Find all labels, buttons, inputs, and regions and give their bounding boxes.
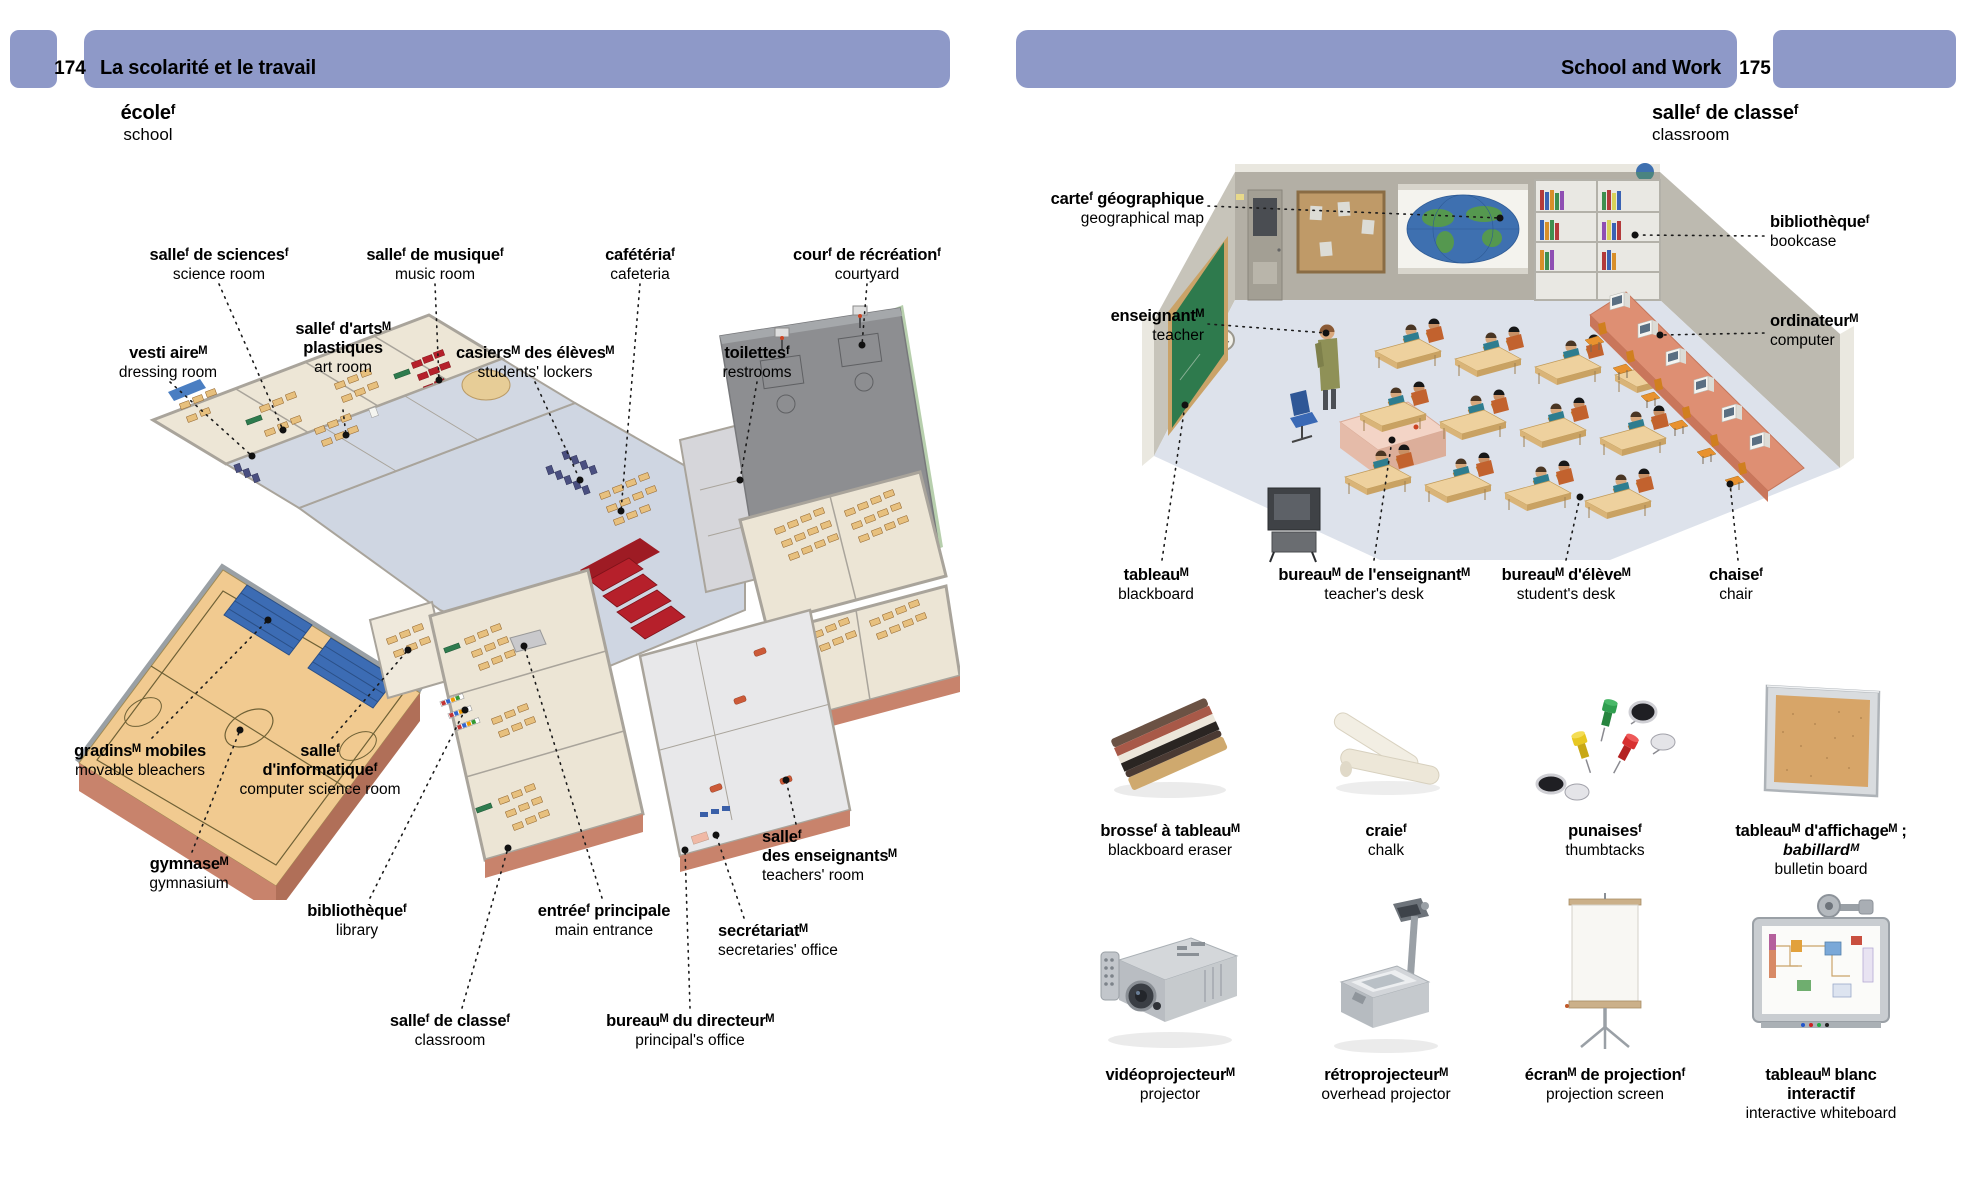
term-en: principal's office — [606, 1031, 774, 1050]
term-en: classroom — [390, 1031, 510, 1050]
callout-label-cafeteria: cafétériaᶠcafeteria — [605, 246, 675, 284]
tv-stand — [1268, 488, 1320, 562]
header-title-right: School and Work — [1561, 57, 1721, 80]
term-en: overhead projector — [1278, 1085, 1494, 1104]
term-en: bulletin board — [1713, 860, 1929, 879]
callout-label-computer: ordinateurᴹcomputer — [1770, 312, 1858, 350]
callout-label-blackboard: tableauᴹblackboard — [1118, 566, 1194, 604]
term-fr: rétroprojecteurᴹ — [1278, 1066, 1494, 1085]
term-fr: entréeᶠ principale — [538, 902, 670, 921]
term-en: student's desk — [1502, 585, 1631, 604]
term-en: teacher's desk — [1278, 585, 1469, 604]
term-fr: tableauᴹ blanc interactif — [1713, 1066, 1929, 1104]
term-en: geographical map — [984, 209, 1204, 228]
callout-label-gymnasium: gymnaseᴹgymnasium — [149, 855, 228, 893]
item-projector: vidéoprojecteurᴹprojector — [1062, 880, 1278, 1104]
section-title-classroom: salleᶠ de classeᶠ classroom — [1652, 102, 1872, 145]
item-bulletin-board: tableauᴹ d'affichageᴹ ;babillardᴹbulleti… — [1713, 658, 1929, 879]
header-band-right: School and Work — [1016, 30, 1737, 88]
term-en: restrooms — [723, 363, 792, 382]
term-fr: gradinsᴹ mobiles — [74, 742, 206, 761]
callout-label-teachers-desk: bureauᴹ de l'enseignantᴹteacher's desk — [1278, 566, 1469, 604]
header-band-right-tab — [1773, 30, 1956, 88]
callout-label-computer-room: salleᶠ d'informatiqueᶠcomputer science r… — [239, 742, 400, 799]
term-fr: toilettesᶠ — [723, 344, 792, 363]
term-fr: carteᶠ géographique — [984, 190, 1204, 209]
push-pin-yellow — [1570, 730, 1597, 775]
callout-label-art-room: salleᶠ d'artsᴹ plastiquesart room — [295, 320, 390, 377]
term-fr: gymnaseᴹ — [149, 855, 228, 874]
callout-label-chair: chaiseᶠchair — [1709, 566, 1763, 604]
term-en: main entrance — [538, 921, 670, 940]
item-projection-screen: écranᴹ de projectionᶠprojection screen — [1497, 880, 1713, 1104]
page-number-right: 175 — [1735, 30, 1775, 88]
term-en: art room — [295, 358, 390, 377]
bulletin-board-icon — [1741, 666, 1901, 816]
term-en: music room — [366, 265, 503, 284]
chalk-icon — [1306, 666, 1466, 816]
term-fr: vesti aireᴹ — [119, 344, 217, 363]
callout-label-teacher: enseignantᴹteacher — [984, 307, 1204, 345]
callout-label-bookcase: bibliothèqueᶠbookcase — [1770, 213, 1869, 251]
header-band-left: La scolarité et le travail — [84, 30, 950, 88]
callout-label-classroom: salleᶠ de classeᶠclassroom — [390, 1012, 510, 1050]
term-fr-alt: babillardᴹ — [1713, 841, 1929, 860]
callout-label-courtyard: courᶠ de récréationᶠcourtyard — [793, 246, 941, 284]
callout-label-principals-office: bureauᴹ du directeurᴹprincipal's office — [606, 1012, 774, 1050]
term-fr: salleᶠ d'informatiqueᶠ — [239, 742, 400, 780]
term-en: blackboard — [1118, 585, 1194, 604]
callout-label-main-entrance: entréeᶠ principalemain entrance — [538, 902, 670, 940]
callout-label-lockers: casiersᴹ des élèvesᴹstudents' lockers — [456, 344, 614, 382]
classroom-illustration — [1140, 150, 1860, 570]
item-interactive-whiteboard: tableauᴹ blanc interactifinteractive whi… — [1713, 880, 1929, 1123]
term-fr: salleᶠ d'artsᴹ plastiques — [295, 320, 390, 358]
term-fr: cafétériaᶠ — [605, 246, 675, 265]
term-fr: écranᴹ de projectionᶠ — [1497, 1066, 1713, 1085]
term-en: secretaries' office — [718, 941, 838, 960]
term-fr: salleᶠ de classeᶠ — [390, 1012, 510, 1031]
callout-label-restrooms: toilettesᶠrestrooms — [723, 344, 792, 382]
term-en: students' lockers — [456, 363, 614, 382]
board-projector-arm — [1818, 895, 1873, 917]
term-en: library — [307, 921, 406, 940]
term-en: computer — [1770, 331, 1858, 350]
term-fr: courᶠ de récréationᶠ — [793, 246, 941, 265]
callout-label-students-desk: bureauᴹ d'élèveᴹstudent's desk — [1502, 566, 1631, 604]
term-en: science room — [149, 265, 288, 284]
item-blackboard-eraser: brosseᶠ à tableauᴹblackboard eraser — [1062, 658, 1278, 860]
gymnasium — [79, 570, 420, 900]
term-en: chalk — [1278, 841, 1494, 860]
term-en: bookcase — [1770, 232, 1869, 251]
term-fr: bibliothèqueᶠ — [307, 902, 406, 921]
section-title-school: écoleᶠ school — [88, 102, 208, 145]
term-en: gymnasium — [149, 874, 228, 893]
callout-label-map: carteᶠ géographiquegeographical map — [984, 190, 1204, 228]
callout-label-secretaries-office: secrétariatᴹsecretaries' office — [718, 922, 838, 960]
term-en: computer science room — [239, 780, 400, 799]
eraser-icon — [1090, 666, 1250, 816]
term-fr: craieᶠ — [1278, 822, 1494, 841]
bookcase — [1535, 163, 1660, 300]
term-fr: salleᶠ de sciencesᶠ — [149, 246, 288, 265]
term-fr: tableauᴹ — [1118, 566, 1194, 585]
term-en: projector — [1062, 1085, 1278, 1104]
term-fr: brosseᶠ à tableauᴹ — [1062, 822, 1278, 841]
term-fr: salleᶠ des enseignantsᴹ — [762, 828, 897, 866]
term-fr: vidéoprojecteurᴹ — [1062, 1066, 1278, 1085]
header-title-left: La scolarité et le travail — [100, 57, 316, 80]
term-en: thumbtacks — [1497, 841, 1713, 860]
callout-label-dressing-room: vesti aireᴹdressing room — [119, 344, 217, 382]
term-en: chair — [1709, 585, 1763, 604]
term-en: courtyard — [793, 265, 941, 284]
term-en: blackboard eraser — [1062, 841, 1278, 860]
wall-edge — [1235, 164, 1660, 172]
thumbtacks-icon — [1525, 666, 1685, 816]
callout-label-science-room: salleᶠ de sciencesᶠscience room — [149, 246, 288, 284]
term-fr: enseignantᴹ — [984, 307, 1204, 326]
term-en: teachers' room — [762, 866, 897, 885]
term-fr: tableauᴹ d'affichageᴹ ; — [1713, 822, 1929, 841]
projection-screen-icon — [1525, 885, 1685, 1060]
term-fr: salleᶠ de musiqueᶠ — [366, 246, 503, 265]
term-fr: punaisesᶠ — [1497, 822, 1713, 841]
callout-label-music-room: salleᶠ de musiqueᶠmusic room — [366, 246, 503, 284]
term-fr: chaiseᶠ — [1709, 566, 1763, 585]
callout-label-teachers-room: salleᶠ des enseignantsᴹteachers' room — [762, 828, 897, 885]
term-fr: bureauᴹ de l'enseignantᴹ — [1278, 566, 1469, 585]
page-number-left: 174 — [53, 30, 87, 88]
term-fr: bureauᴹ du directeurᴹ — [606, 1012, 774, 1031]
term-fr: bibliothèqueᶠ — [1770, 213, 1869, 232]
push-pin-green — [1594, 698, 1618, 743]
term-en: teacher — [984, 326, 1204, 345]
section-title-fr: salleᶠ de classeᶠ — [1652, 102, 1872, 125]
section-title-en: school — [88, 125, 208, 145]
term-fr: secrétariatᴹ — [718, 922, 838, 941]
projector-icon — [1085, 900, 1255, 1060]
term-fr: ordinateurᴹ — [1770, 312, 1858, 331]
overhead-projector-icon — [1301, 890, 1471, 1060]
term-fr: bureauᴹ d'élèveᴹ — [1502, 566, 1631, 585]
interactive-whiteboard-icon — [1733, 888, 1909, 1060]
push-pin-red — [1608, 732, 1641, 777]
callout-label-bleachers: gradinsᴹ mobilesmovable bleachers — [74, 742, 206, 780]
item-thumbtacks: punaisesᶠthumbtacks — [1497, 658, 1713, 860]
term-en: movable bleachers — [74, 761, 206, 780]
cork-board — [1298, 192, 1384, 272]
term-en: projection screen — [1497, 1085, 1713, 1104]
callout-label-library: bibliothèqueᶠlibrary — [307, 902, 406, 940]
term-en: interactive whiteboard — [1713, 1104, 1929, 1123]
term-en: dressing room — [119, 363, 217, 382]
item-chalk: craieᶠchalk — [1278, 658, 1494, 860]
header-band-left-tab — [10, 30, 57, 88]
term-en: cafeteria — [605, 265, 675, 284]
dictionary-spread: 174 La scolarité et le travail School an… — [0, 0, 1966, 1200]
section-title-en: classroom — [1652, 125, 1872, 145]
world-map — [1398, 184, 1528, 274]
item-overhead-projector: rétroprojecteurᴹoverhead projector — [1278, 880, 1494, 1104]
section-title-fr: écoleᶠ — [88, 102, 208, 125]
term-fr: casiersᴹ des élèvesᴹ — [456, 344, 614, 363]
